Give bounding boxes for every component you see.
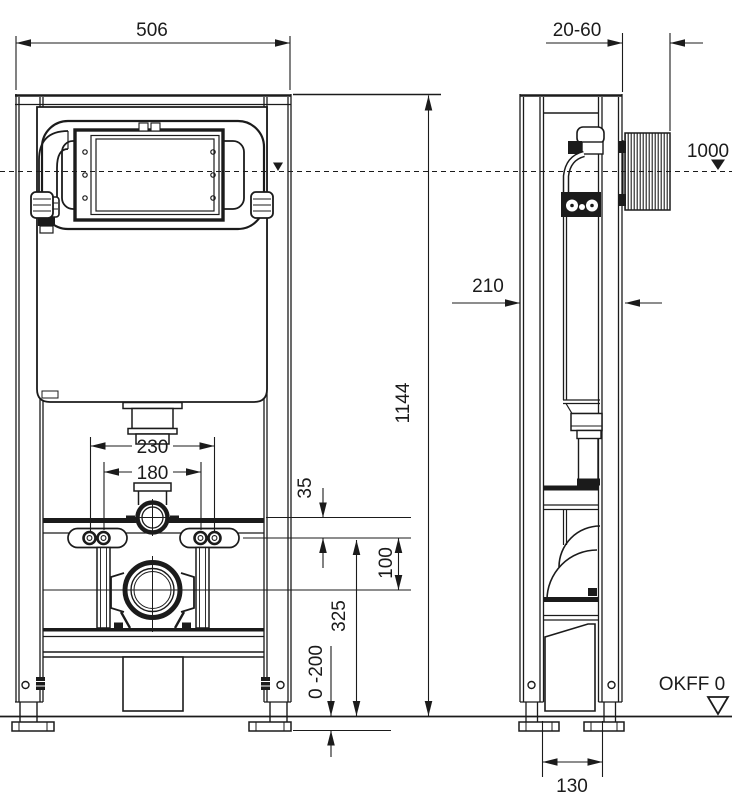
side-flush-pipe <box>579 439 599 480</box>
technical-drawing-page: 506 20-60 1000 210 1144 35 100 325 0 -20… <box>0 0 732 800</box>
dim-bracket-to-outlet: 100 <box>376 547 397 579</box>
side-view <box>519 94 670 731</box>
inspection-window-frame <box>75 130 223 220</box>
dim-bracket-height: 325 <box>329 600 350 632</box>
drain-clamp-right <box>181 573 194 612</box>
dim-depth: 210 <box>472 276 504 297</box>
dim-total-height: 1144 <box>393 382 414 423</box>
dim-leg-range: 0 -200 <box>306 645 327 699</box>
water-level-marker-icon <box>273 163 283 172</box>
installation-frame-drawing: 506 20-60 1000 210 1144 35 100 325 0 -20… <box>0 0 732 800</box>
side-frame-rails <box>520 94 622 702</box>
floor-level-triangle-icon <box>708 697 728 714</box>
label-floor-level: OKFF 0 <box>659 674 726 695</box>
front-view <box>12 94 291 731</box>
drain-duct <box>123 657 183 711</box>
dim-pipe-to-bracket: 35 <box>295 477 316 498</box>
dim-bolt-spacing-outer: 230 <box>137 437 169 458</box>
dim-front-width: 506 <box>136 20 168 41</box>
side-drain-duct <box>545 624 595 711</box>
dim-bolt-spacing-inner: 180 <box>137 463 169 484</box>
dim-foot-width: 130 <box>556 776 588 797</box>
drain-clamp-left <box>111 573 124 612</box>
dim-level-height: 1000 <box>687 141 729 162</box>
dim-wall-gap: 20-60 <box>553 20 602 41</box>
